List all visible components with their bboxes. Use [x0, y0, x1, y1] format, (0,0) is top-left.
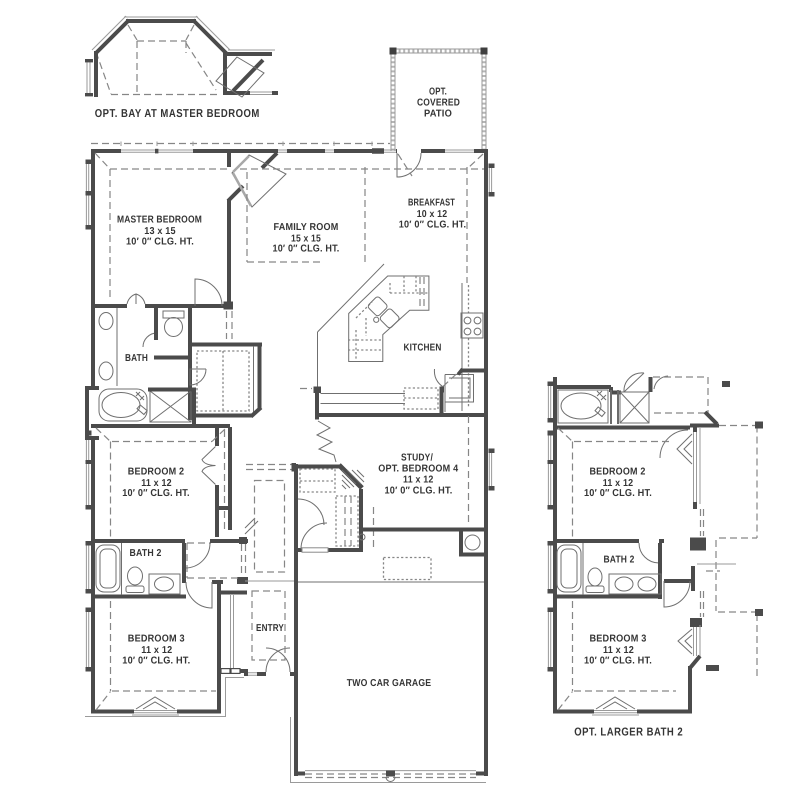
svg-text:FAMILY ROOM: FAMILY ROOM [274, 222, 339, 233]
svg-text:BREAKFAST: BREAKFAST [408, 198, 455, 209]
svg-text:BEDROOM 2: BEDROOM 2 [128, 467, 185, 478]
svg-text:BATH 2: BATH 2 [604, 555, 635, 566]
svg-text:11 x 12: 11 x 12 [603, 645, 634, 656]
svg-text:BATH 2: BATH 2 [130, 548, 162, 559]
svg-text:11 x 12: 11 x 12 [141, 645, 172, 656]
svg-text:10 x 12: 10 x 12 [417, 209, 448, 220]
svg-text:OPT. BEDROOM 4: OPT. BEDROOM 4 [378, 464, 458, 475]
svg-text:10′ 0″ CLG. HT.: 10′ 0″ CLG. HT. [399, 220, 467, 231]
svg-text:10′ 0″ CLG. HT.: 10′ 0″ CLG. HT. [584, 656, 652, 667]
svg-text:TWO CAR GARAGE: TWO CAR GARAGE [347, 678, 432, 689]
svg-text:BATH: BATH [125, 353, 148, 364]
svg-text:BEDROOM 3: BEDROOM 3 [590, 634, 647, 645]
svg-text:11 x 12: 11 x 12 [403, 475, 434, 486]
svg-text:OPT.: OPT. [429, 87, 447, 98]
svg-text:MASTER BEDROOM: MASTER BEDROOM [117, 215, 202, 226]
svg-text:STUDY/: STUDY/ [401, 453, 433, 464]
svg-text:OPT. BAY AT MASTER BEDROOM: OPT. BAY AT MASTER BEDROOM [95, 108, 260, 120]
svg-text:KITCHEN: KITCHEN [404, 343, 442, 354]
svg-text:10′ 0″ CLG. HT.: 10′ 0″ CLG. HT. [122, 656, 190, 667]
svg-text:10′ 0″ CLG. HT.: 10′ 0″ CLG. HT. [122, 488, 190, 499]
svg-text:OPT. LARGER BATH 2: OPT. LARGER BATH 2 [574, 727, 683, 739]
svg-text:ENTRY: ENTRY [256, 623, 284, 634]
svg-text:PATIO: PATIO [424, 109, 452, 120]
svg-text:BEDROOM 3: BEDROOM 3 [128, 634, 185, 645]
svg-text:10′ 0″ CLG. HT.: 10′ 0″ CLG. HT. [273, 244, 340, 255]
svg-text:10′ 0″ CLG. HT.: 10′ 0″ CLG. HT. [584, 488, 652, 499]
svg-text:COVERED: COVERED [417, 98, 460, 109]
svg-text:13 x 15: 13 x 15 [144, 226, 176, 237]
svg-text:10′ 0″ CLG. HT.: 10′ 0″ CLG. HT. [126, 237, 194, 248]
svg-text:10′ 0″ CLG. HT.: 10′ 0″ CLG. HT. [385, 486, 453, 497]
svg-text:BEDROOM 2: BEDROOM 2 [590, 467, 646, 478]
